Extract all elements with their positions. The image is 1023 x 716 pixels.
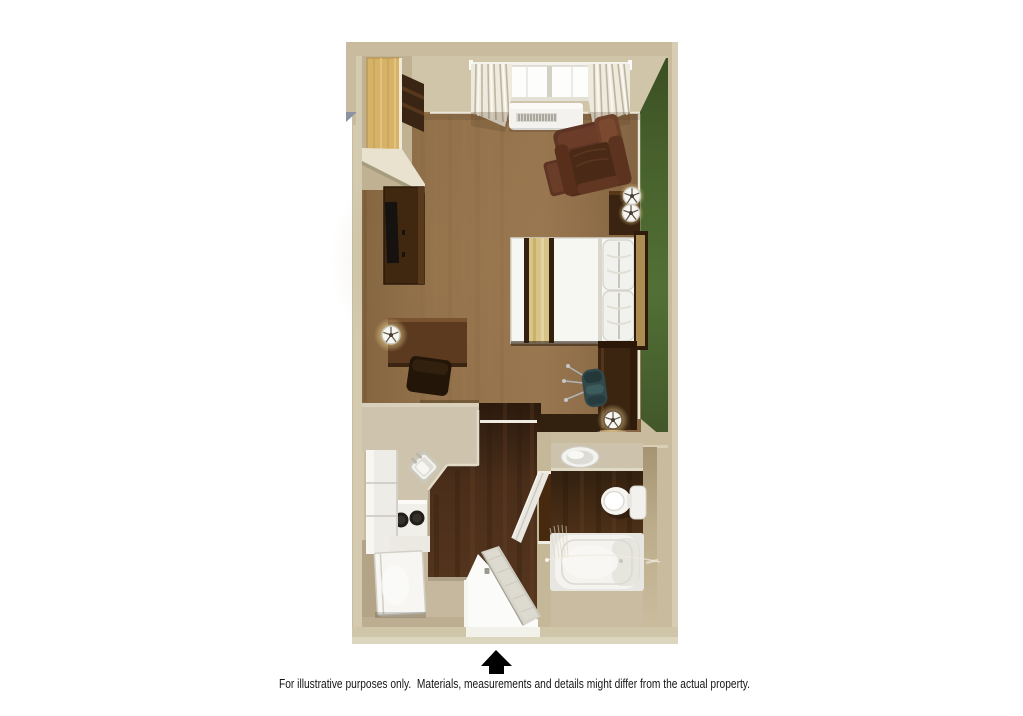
svg-text:For illustrative purposes only: For illustrative purposes only. Material…	[279, 677, 750, 691]
